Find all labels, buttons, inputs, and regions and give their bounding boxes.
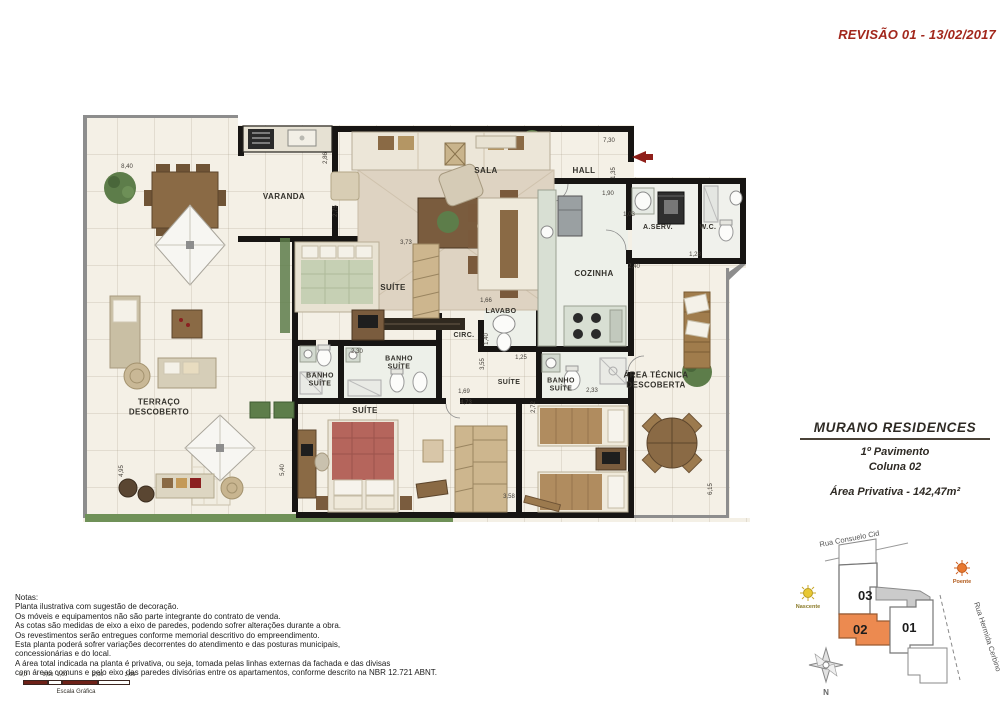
dim-label: 6,15 bbox=[708, 483, 714, 495]
dim-label: 4,73 bbox=[460, 400, 472, 406]
dim-label: 1,69 bbox=[458, 389, 470, 395]
dim-label: 1,40 bbox=[484, 333, 490, 345]
room-label-banho-suite-2: BANHO SUÍTE bbox=[385, 356, 413, 373]
scale-tick: 1,00 bbox=[57, 672, 68, 678]
notes-line: As cotas são medidas de eixo a eixo de p… bbox=[15, 621, 437, 630]
master-wardrobe bbox=[455, 426, 507, 512]
notes-line: Os móveis e equipamentos não são parte i… bbox=[15, 612, 437, 621]
room-label-cozinha: COZINHA bbox=[574, 269, 613, 279]
master-suite-furniture bbox=[298, 420, 507, 512]
dim-label: 2,72 bbox=[531, 401, 537, 413]
floor-plan-drawing bbox=[80, 110, 750, 525]
scale-segment bbox=[98, 680, 130, 685]
dim-label: 4,95 bbox=[119, 465, 125, 477]
svg-text:03: 03 bbox=[858, 588, 872, 603]
floor-plan bbox=[80, 110, 750, 525]
bed-red bbox=[332, 422, 394, 480]
dim-label: 3,73 bbox=[400, 240, 412, 246]
svg-text:Rua Hermida Cerbino: Rua Hermida Cerbino bbox=[972, 601, 1000, 673]
notes-line: concessionárias e do local. bbox=[15, 649, 437, 658]
lot-extension bbox=[908, 648, 947, 683]
floor-label: 1º Pavimento bbox=[795, 446, 995, 458]
private-area-label: Área Privativa - 142,47m² bbox=[795, 486, 995, 498]
unit-01: 01 bbox=[890, 600, 933, 653]
svg-text:N: N bbox=[823, 688, 829, 697]
room-label-banho-suite-1: BANHO SUÍTE bbox=[306, 373, 334, 390]
room-label-suite-2: SUÍTE bbox=[498, 379, 521, 387]
bed-twin-1 bbox=[540, 408, 602, 444]
dim-label: 3,55 bbox=[480, 358, 486, 370]
street-right: Rua Hermida Cerbino bbox=[940, 595, 1000, 680]
dim-label: 1,35 bbox=[611, 167, 617, 179]
room-label-banho-suite-3: BANHO SUÍTE bbox=[547, 378, 575, 395]
svg-text:Nascente: Nascente bbox=[796, 604, 820, 610]
scale-tick: 2,00 bbox=[93, 672, 104, 678]
room-label-lavabo: LAVABO bbox=[486, 308, 517, 316]
room-label-varanda: VARANDA bbox=[263, 192, 305, 202]
dim-label: 2,40 bbox=[628, 264, 640, 270]
scale-tick: 0,50 bbox=[43, 672, 54, 678]
scale-tick: 3,00 bbox=[125, 672, 136, 678]
dim-label: 1,66 bbox=[480, 298, 492, 304]
sun-west-icon: Poente bbox=[953, 560, 971, 585]
notes-line: Planta ilustrativa com sugestão de decor… bbox=[15, 602, 437, 611]
dim-label: 2,75 bbox=[333, 205, 339, 217]
room-label-area-tecnica: ÁREA TÉCNICA DESCOBERTA bbox=[624, 370, 689, 389]
desk bbox=[298, 430, 316, 498]
sun-east-icon: Nascente bbox=[796, 585, 820, 610]
dim-label: 1,25 bbox=[515, 355, 527, 361]
notes-block: Notas: Planta ilustrativa com sugestão d… bbox=[15, 593, 437, 678]
dim-label: 2,30 bbox=[351, 349, 363, 355]
column-label: Coluna 02 bbox=[795, 461, 995, 473]
scale-caption: Escala Gráfica bbox=[20, 689, 132, 695]
page: { "revision": "REVISÃO 01 - 13/02/2017",… bbox=[0, 0, 1000, 704]
wardrobe bbox=[413, 244, 439, 318]
notes-heading: Notas: bbox=[15, 593, 437, 602]
dim-label: 2,86 bbox=[323, 152, 329, 164]
bed-green bbox=[301, 260, 373, 304]
dim-label: 3,58 bbox=[503, 494, 515, 500]
scale-segment bbox=[48, 680, 62, 685]
notes-line: Os revestimentos serão entregues conform… bbox=[15, 631, 437, 640]
room-label-sala: SALA bbox=[474, 166, 497, 176]
scale-segment bbox=[23, 680, 48, 685]
room-label-aserv: A.SERV. bbox=[643, 224, 673, 232]
room-label-suite-master: SUÍTE bbox=[352, 406, 378, 416]
fridge-icon bbox=[558, 196, 582, 236]
title-rule bbox=[800, 438, 990, 440]
room-label-wc: W.C. bbox=[700, 224, 717, 232]
terrace-sun-area bbox=[119, 415, 255, 505]
svg-text:Poente: Poente bbox=[953, 579, 971, 585]
suite2-furniture bbox=[524, 406, 628, 512]
room-label-terraco: TERRAÇO DESCOBERTO bbox=[129, 397, 189, 416]
room-label-circ: CIRC. bbox=[453, 332, 474, 340]
compass-icon: N bbox=[809, 648, 843, 697]
dim-label: 1,28 bbox=[689, 252, 701, 258]
graphic-scale: 0,0 0,50 1,00 2,00 3,00 Escala Gráfica bbox=[20, 672, 150, 698]
dim-label: 7,30 bbox=[603, 138, 615, 144]
revision-label: REVISÃO 01 - 13/02/2017 bbox=[700, 27, 996, 42]
svg-text:01: 01 bbox=[902, 620, 916, 635]
unit-03: 03 bbox=[839, 563, 877, 614]
scale-tick: 0,0 bbox=[19, 672, 27, 678]
notes-line: A área total indicada na planta é privat… bbox=[15, 659, 437, 668]
svg-text:02: 02 bbox=[853, 622, 867, 637]
dim-label: 5,40 bbox=[280, 464, 286, 476]
room-label-suite-1: SUÍTE bbox=[380, 283, 406, 293]
room-label-hall: HALL bbox=[573, 166, 596, 176]
grill-icon bbox=[248, 129, 274, 149]
dim-label: 1,03 bbox=[623, 212, 635, 218]
varanda-counter bbox=[243, 126, 332, 152]
dim-label: 2,33 bbox=[586, 388, 598, 394]
terrace-loungers bbox=[110, 296, 216, 389]
unit-02-highlighted: 02 bbox=[839, 614, 890, 645]
dim-label: 8,40 bbox=[121, 164, 133, 170]
notes-line: Esta planta poderá sofrer variações deco… bbox=[15, 640, 437, 649]
site-location-map: Rua Consuelo Cid Rua Hermida Cerbino 03 … bbox=[790, 515, 1000, 709]
scale-segment bbox=[62, 680, 98, 685]
dim-label: 1,90 bbox=[602, 191, 614, 197]
ottoman bbox=[331, 172, 359, 200]
project-title: MURANO RESIDENCES bbox=[795, 420, 995, 435]
